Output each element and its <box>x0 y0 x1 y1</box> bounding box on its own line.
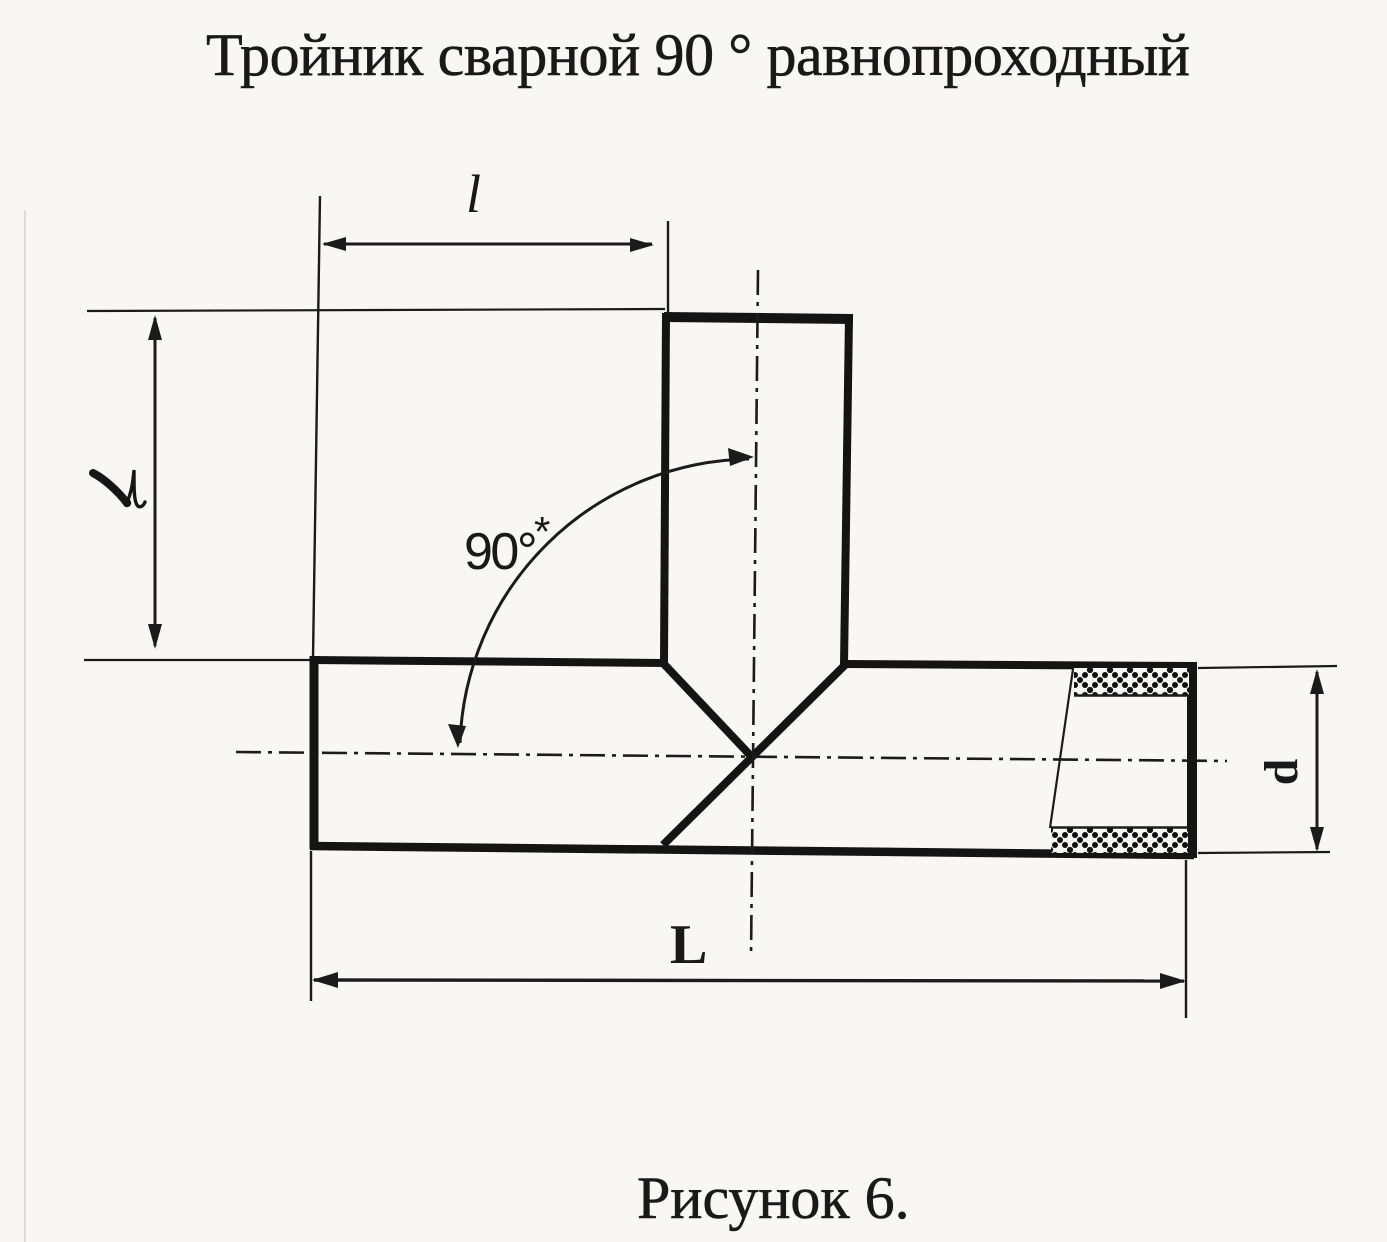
svg-text:*: * <box>534 508 550 555</box>
svg-text:Рисунок 6.: Рисунок 6. <box>637 1165 910 1231</box>
svg-text:d: d <box>1255 758 1308 785</box>
svg-text:L: L <box>670 914 707 976</box>
svg-text:Тройник сварной 90 ° равнопрох: Тройник сварной 90 ° равнопроходный <box>206 22 1190 88</box>
svg-text:90°: 90° <box>464 523 535 581</box>
svg-text:l: l <box>466 164 481 224</box>
